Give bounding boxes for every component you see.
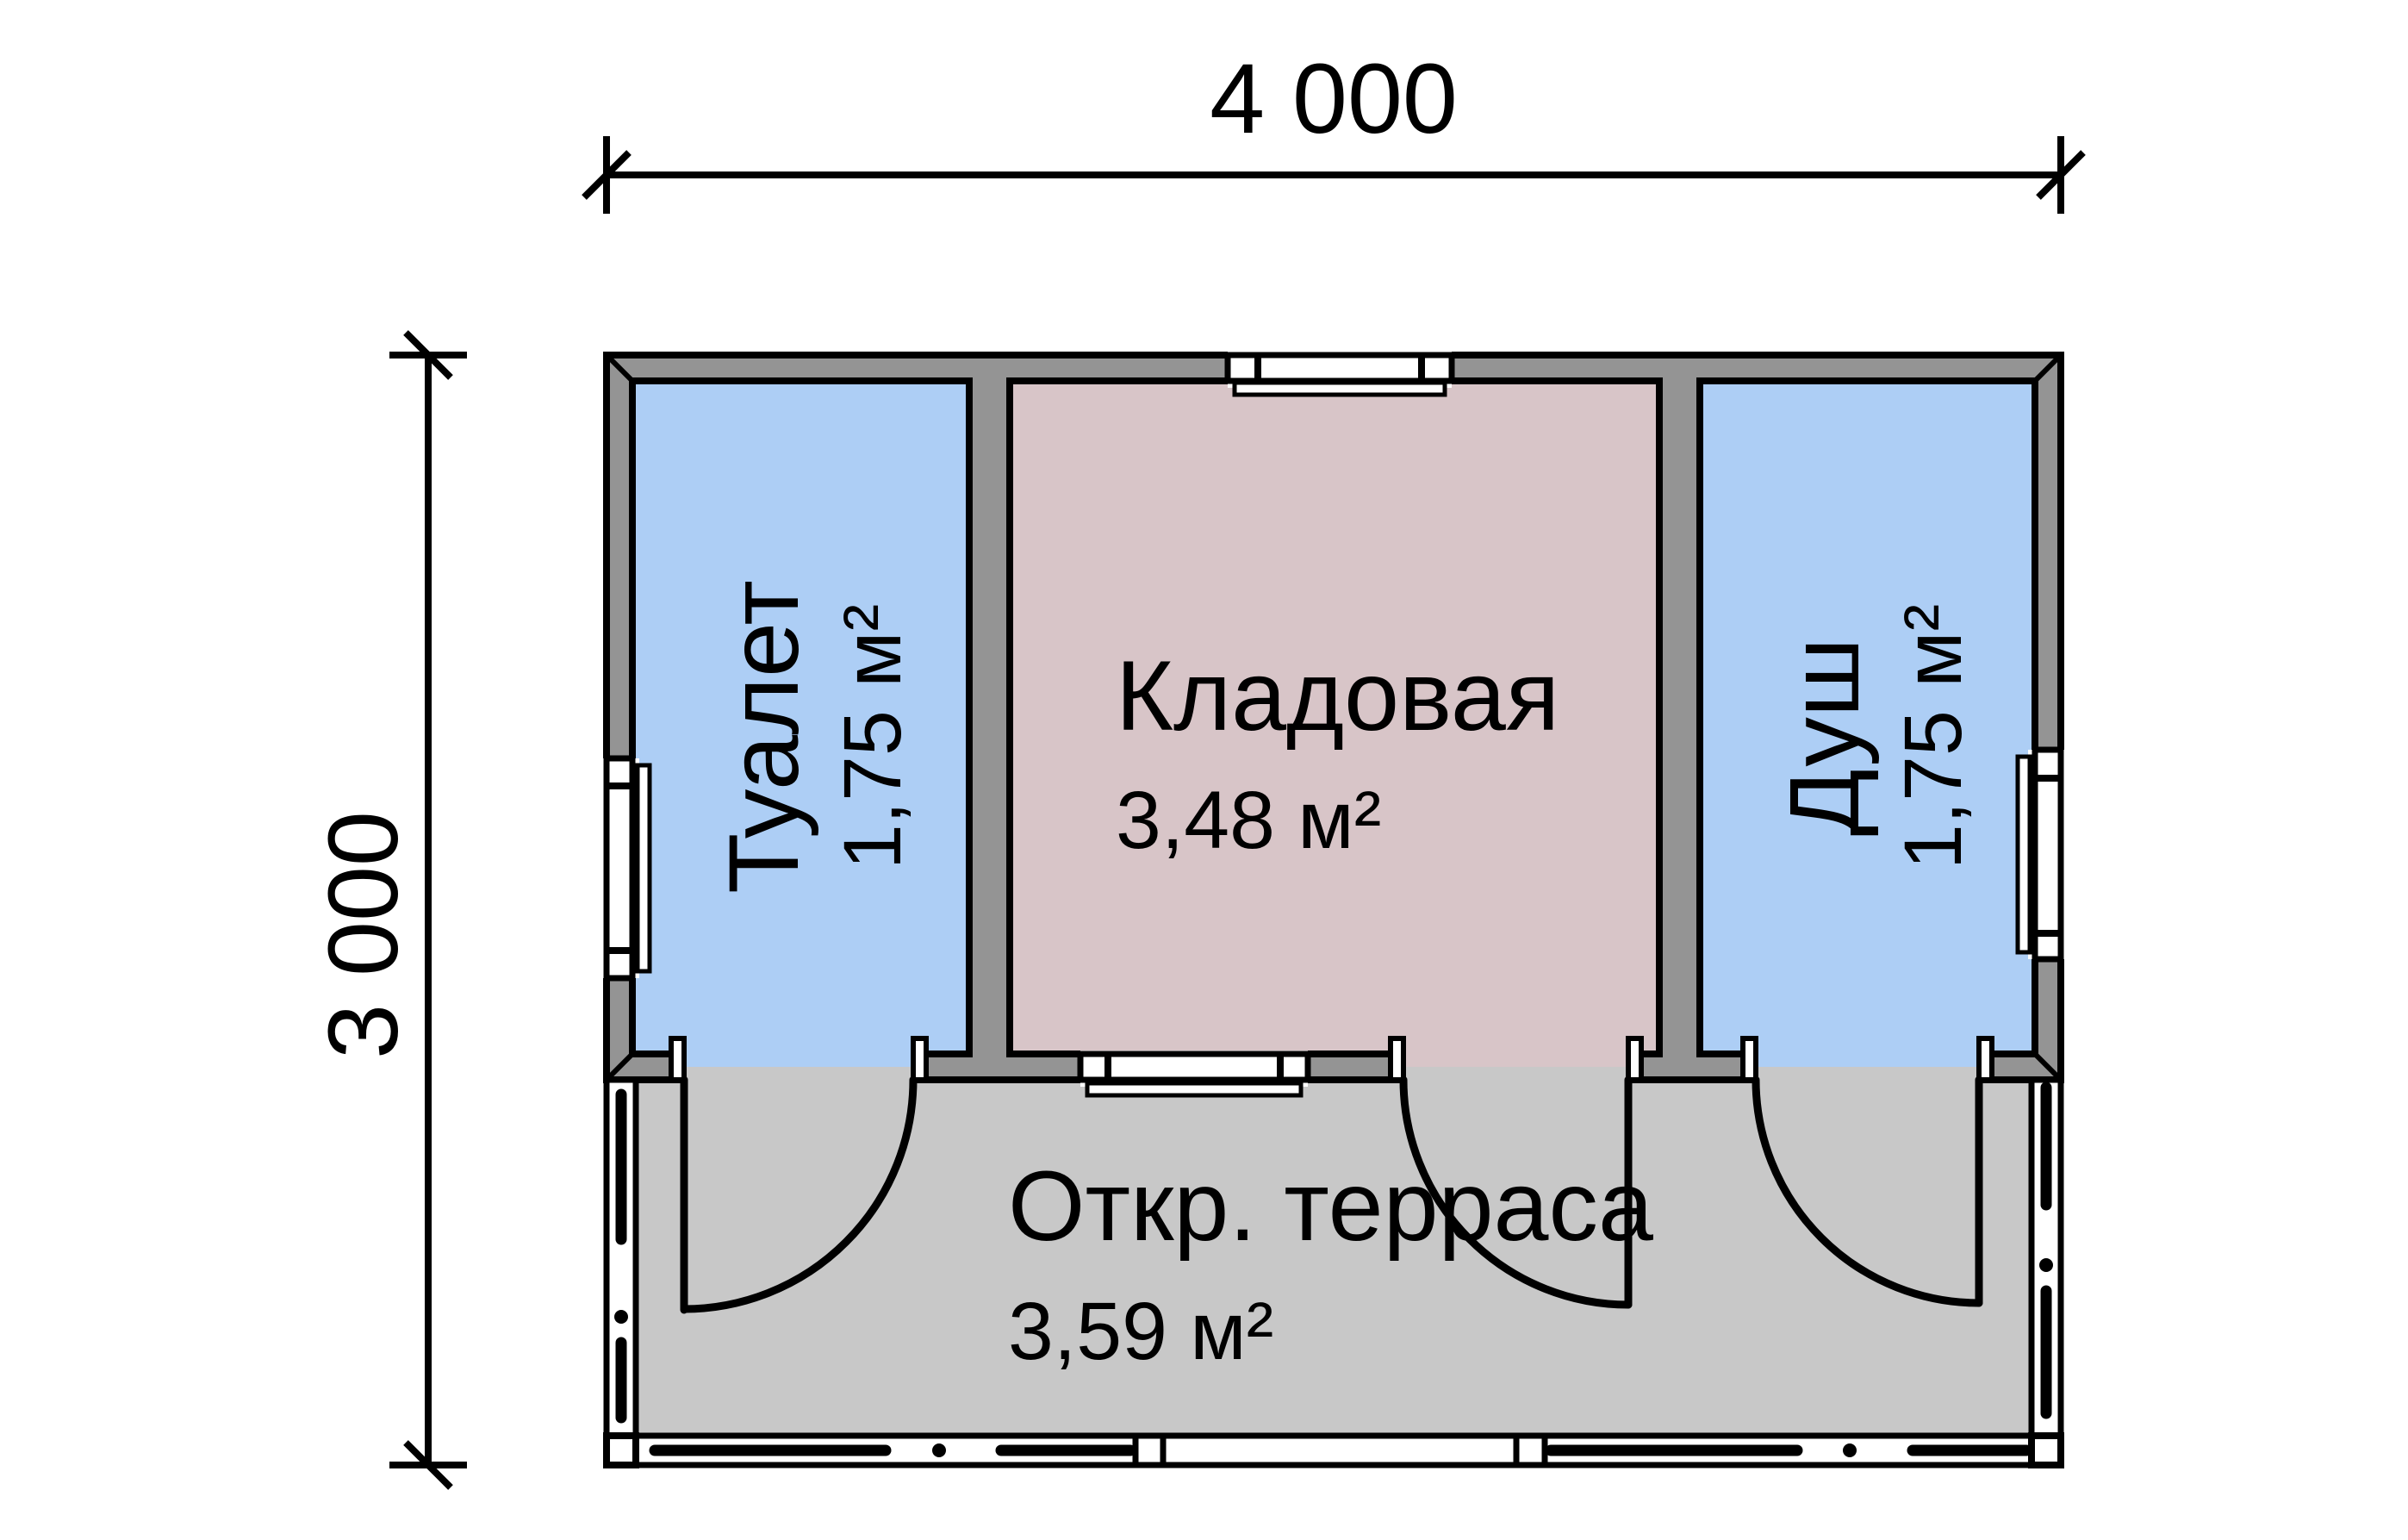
room-name: Душ bbox=[1773, 638, 1878, 836]
door-jamb bbox=[1979, 1038, 1992, 1080]
railing-dot bbox=[2039, 1258, 2053, 1272]
room-name: Туалет bbox=[712, 580, 818, 894]
railing-post bbox=[1136, 1436, 1163, 1465]
railing-post bbox=[1516, 1436, 1545, 1465]
room-area: 3,48 м² bbox=[1116, 780, 1381, 862]
door-jamb bbox=[913, 1038, 926, 1080]
room-label-storage: Кладовая 3,48 м² bbox=[1116, 645, 1559, 862]
dim-label-width: 4 000 bbox=[989, 50, 1678, 149]
window-terrace bbox=[1080, 1051, 1308, 1095]
door-opening-storage bbox=[1403, 1051, 1628, 1085]
room-label-shower: Душ 1,75 м² bbox=[1770, 556, 1977, 918]
room-name: Кладовая bbox=[1116, 645, 1559, 750]
room-label-terrace: Откр. терраса 3,59 м² bbox=[1008, 1155, 1653, 1373]
room-area: 3,59 м² bbox=[1008, 1291, 1273, 1373]
railing-dot bbox=[932, 1443, 946, 1457]
room-label-toilet: Туалет 1,75 м² bbox=[710, 556, 917, 918]
railing-corner-left bbox=[607, 1436, 636, 1465]
door-opening-toilet bbox=[684, 1051, 913, 1085]
door-jamb bbox=[1628, 1038, 1641, 1080]
dim-label-height: 3 000 bbox=[314, 590, 426, 1280]
door-jamb bbox=[671, 1038, 684, 1080]
window-right bbox=[2018, 750, 2068, 959]
railing-dot bbox=[614, 1310, 628, 1324]
window-left bbox=[600, 758, 650, 978]
room-area: 1,75 м² bbox=[1893, 604, 1975, 870]
railing-corner-right bbox=[2032, 1436, 2061, 1465]
door-jamb bbox=[1743, 1038, 1756, 1080]
room-name: Откр. терраса bbox=[1008, 1155, 1653, 1260]
railing-dot bbox=[1843, 1443, 1857, 1457]
window-top bbox=[1228, 348, 1452, 395]
floor-plan: 4 000 3 000 Туалет 1,75 м² Кладовая 3,48… bbox=[0, 0, 2408, 1540]
door-opening-shower bbox=[1756, 1051, 1979, 1085]
door-jamb bbox=[1391, 1038, 1403, 1080]
room-area: 1,75 м² bbox=[832, 604, 914, 870]
